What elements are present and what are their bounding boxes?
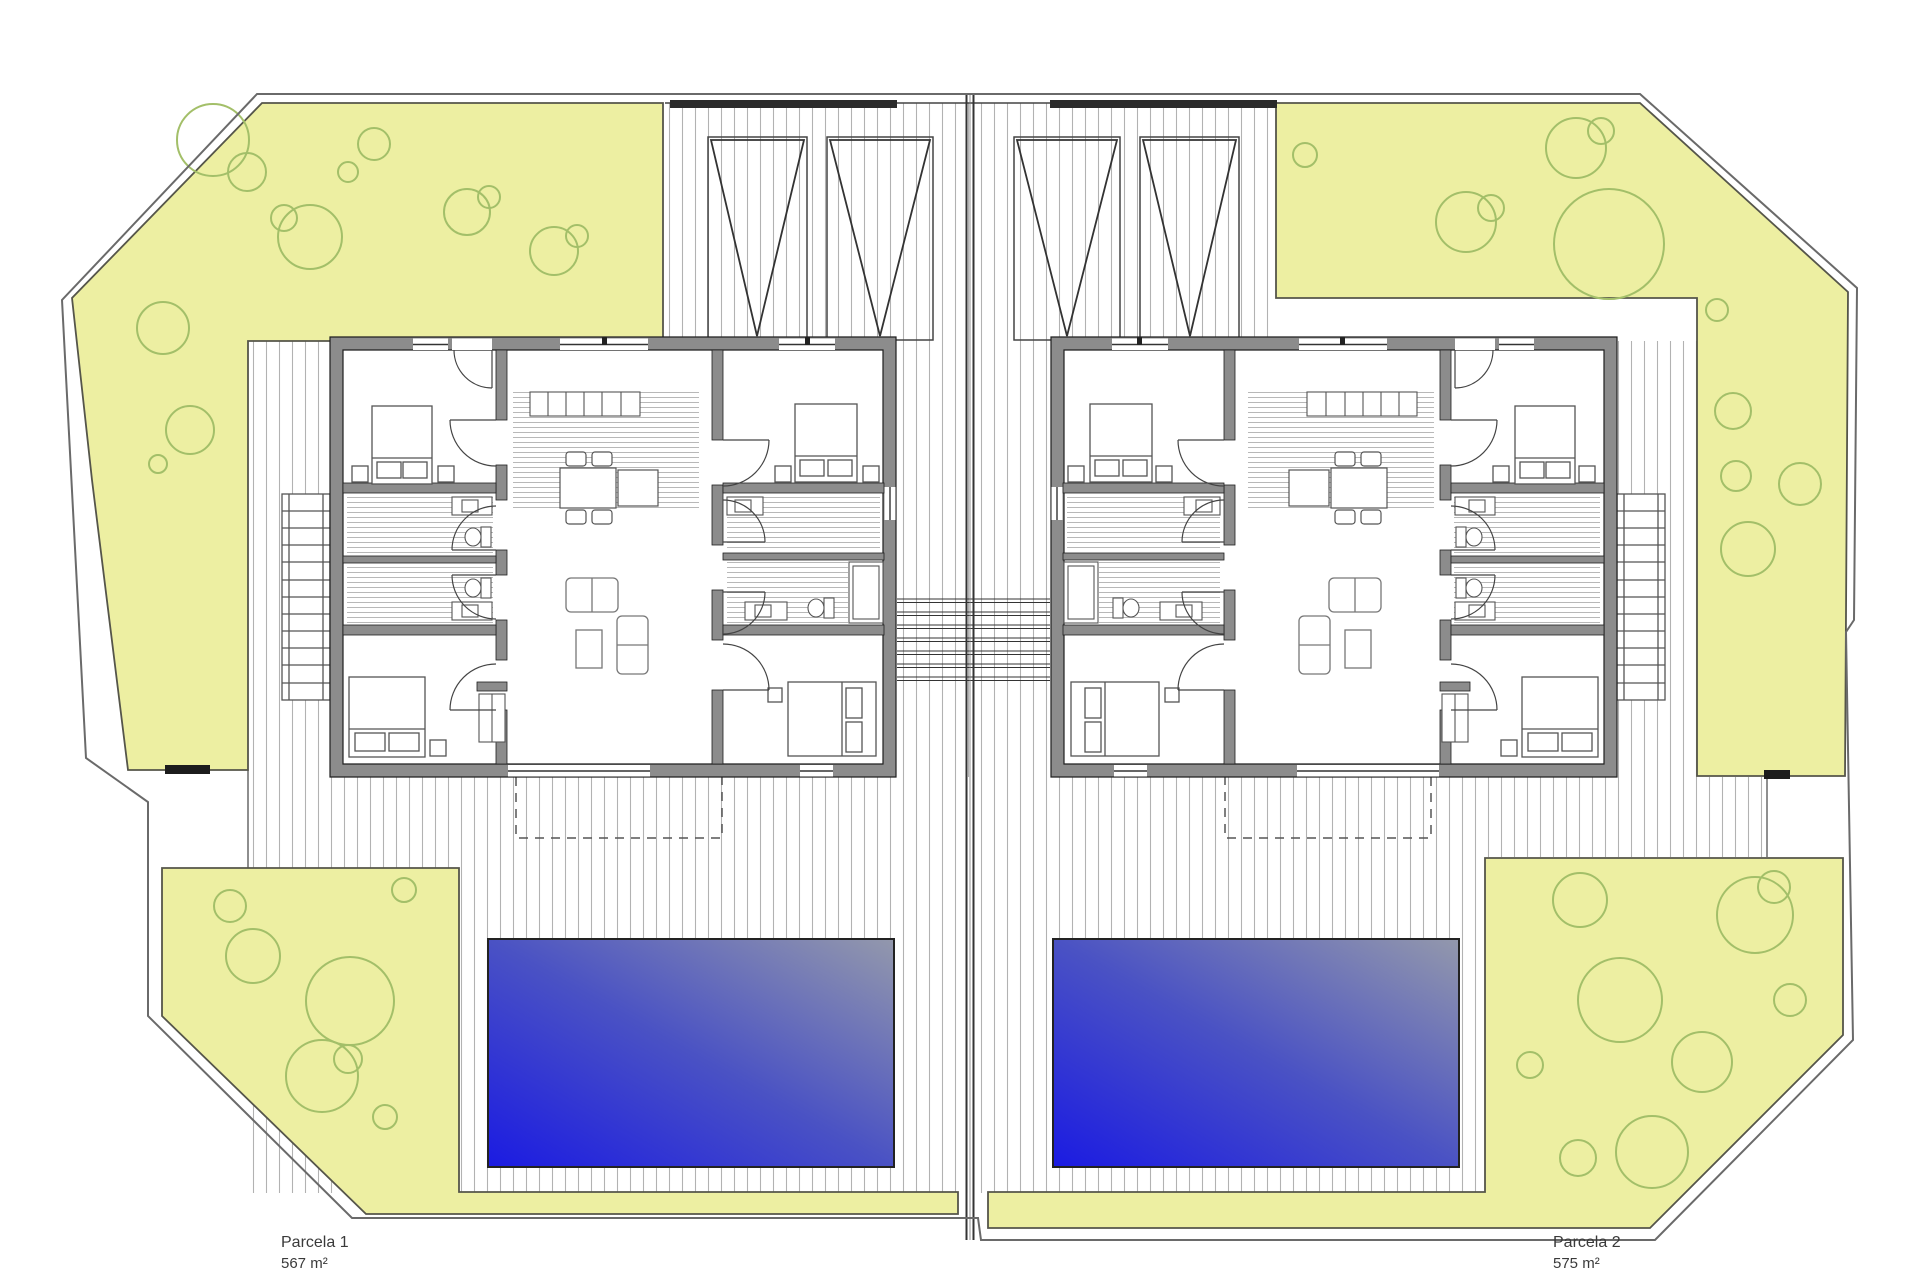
parcel-2-name: Parcela 2 bbox=[1553, 1232, 1621, 1254]
parcel-1-area: 567 m² bbox=[281, 1254, 349, 1274]
parcel-1-label: Parcela 1 567 m² bbox=[281, 1232, 349, 1274]
parcel-2-label: Parcela 2 575 m² bbox=[1553, 1232, 1621, 1274]
garden-gate bbox=[1764, 770, 1790, 779]
parcel-1-name: Parcela 1 bbox=[281, 1232, 349, 1254]
pool-2 bbox=[1053, 939, 1459, 1167]
pool-1 bbox=[488, 939, 894, 1167]
site-plan-canvas: Parcela 1 567 m² Parcela 2 575 m² bbox=[0, 0, 1920, 1280]
street-wall bbox=[1050, 100, 1277, 108]
parcel-2-area: 575 m² bbox=[1553, 1254, 1621, 1274]
garden-gate bbox=[165, 765, 210, 774]
site-plan-drawing bbox=[0, 0, 1920, 1280]
street-wall bbox=[670, 100, 897, 108]
